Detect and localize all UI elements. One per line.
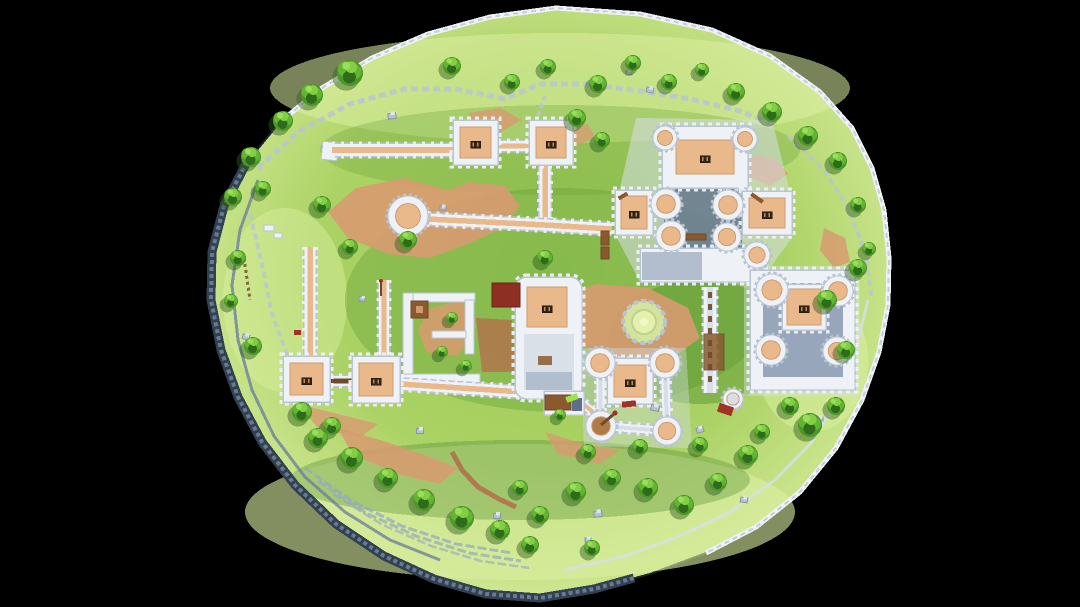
central-keep-floor-shade <box>526 372 572 390</box>
ladder-ne <box>601 231 609 245</box>
wall-ring-road <box>427 219 612 229</box>
west-tower-a <box>281 354 332 404</box>
ruin-wall <box>465 300 474 354</box>
rocks-item <box>651 403 660 411</box>
central-keep-table <box>538 356 552 365</box>
bridge-ne-courtyard <box>686 234 706 240</box>
ruin-bit <box>264 225 274 231</box>
layer-garden <box>623 301 665 343</box>
dirt-courtyard <box>476 318 516 372</box>
ne-annex-east <box>740 189 794 237</box>
ruin-wall <box>432 331 466 338</box>
ne-turret <box>712 222 743 253</box>
central-keep-hatch <box>542 306 552 313</box>
rocks-item <box>494 512 501 518</box>
west-tower-b <box>350 354 402 405</box>
crane-tip <box>613 411 618 416</box>
flag-pole-top <box>379 279 383 283</box>
rocks-item <box>440 205 446 210</box>
ne-annex-west <box>613 188 655 237</box>
ladder-ne <box>601 247 609 259</box>
gate-tower-a <box>451 118 500 167</box>
ne-platform-shade <box>642 252 702 280</box>
rocks-item <box>740 496 748 503</box>
render-viewport <box>0 0 1080 607</box>
rocks-item <box>359 296 366 302</box>
minecraft-floating-island-castle-render <box>0 0 1080 607</box>
red-bit <box>294 330 301 335</box>
garden-center <box>640 318 648 326</box>
red-roof-ruin <box>492 283 520 307</box>
scaffold-platform <box>704 334 724 370</box>
ruin-bit <box>274 233 282 238</box>
rocks-item <box>646 86 654 93</box>
south-castle-turret <box>652 416 683 447</box>
rocks-item <box>417 427 424 433</box>
well-inner <box>416 306 423 313</box>
wall-southwest <box>400 384 522 392</box>
